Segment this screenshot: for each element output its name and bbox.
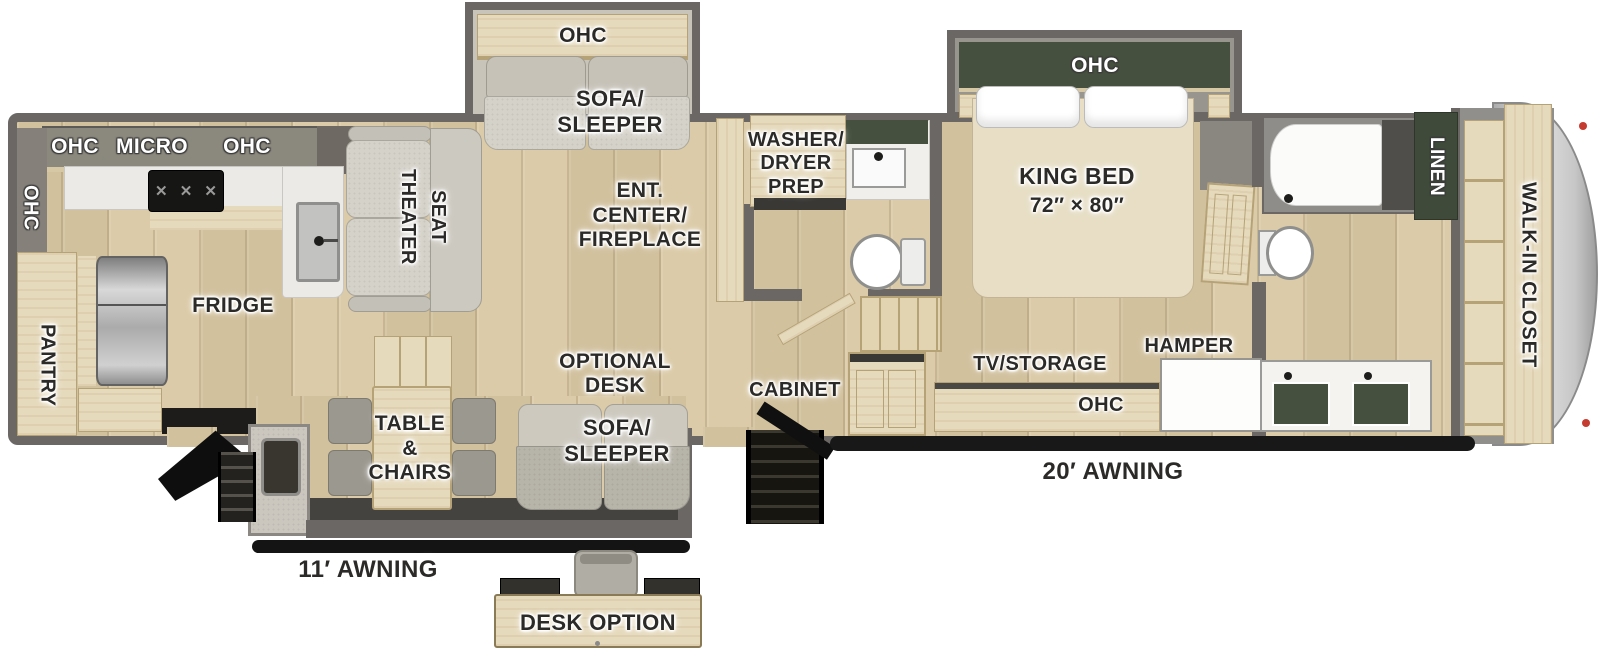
bath-shelf (846, 120, 928, 144)
fridge-label: FRIDGE (178, 292, 288, 320)
sofa-slide-ohc-label: OHC (533, 18, 633, 54)
bedroom-ohc-label: OHC (1045, 48, 1145, 84)
theater-seat-armrest (348, 296, 432, 312)
washer-dryer-label: WASHER/ DRYER PREP (735, 118, 857, 210)
rear-awning-label: 11′ AWNING (268, 556, 468, 584)
pantry-label: PANTRY (30, 300, 64, 430)
table-chairs-label: TABLE & CHAIRS (348, 406, 472, 492)
hall-cabinet-door (888, 370, 916, 428)
faucet-icon (1364, 372, 1372, 380)
fridge-door-split (98, 304, 166, 306)
faucet-icon (1284, 372, 1292, 380)
hamper-box (1160, 358, 1262, 432)
toilet-tank (900, 238, 926, 286)
faucet-icon (1284, 194, 1293, 203)
console-top-edge (935, 383, 1159, 389)
slide-bottom-wall (306, 520, 692, 538)
main-awning-label: 20′ AWNING (1013, 458, 1213, 486)
closet-shelves (1464, 120, 1504, 436)
pillow (976, 86, 1080, 128)
faucet-icon (314, 236, 324, 246)
walk-in-closet-label: WALK-IN CLOSET (1506, 120, 1550, 430)
vanity-sink (1272, 382, 1330, 426)
slide-window (261, 438, 301, 496)
king-bed-size-label: 72″ × 80″ (1002, 192, 1152, 220)
desk-option-label: DESK OPTION (508, 608, 688, 638)
pillow (1084, 86, 1188, 128)
faucet-icon (874, 152, 883, 161)
kitchen-ohc-left-label: OHC (44, 130, 106, 164)
cooktop: ✕✕✕ (148, 170, 224, 212)
floorplan-canvas: WALK-IN CLOSET OHC MICRO OHC OHC PANTRY … (0, 0, 1600, 650)
optional-desk-label: OPTIONAL DESK (540, 346, 690, 402)
kitchen-micro-label: MICRO (106, 130, 198, 164)
console-ohc-label: OHC (1056, 392, 1146, 420)
hamper-label: HAMPER (1130, 334, 1248, 360)
hall-cabinet-top (850, 354, 924, 362)
awning-roller (830, 436, 1475, 451)
bedroom-dresser (1200, 118, 1252, 190)
faucet-handle-icon (324, 239, 338, 242)
kitchen-ohc-right-label: OHC (214, 130, 280, 164)
burner-icon: ✕ (155, 182, 168, 200)
hutch (374, 336, 452, 388)
cabinet-beside-fridge (78, 256, 96, 386)
toilet (1266, 226, 1314, 280)
desk-chair-back (580, 554, 632, 564)
ent-center-label: ENT. CENTER/ FIREPLACE (558, 174, 722, 258)
bath-wall (744, 204, 754, 301)
entry-steps (218, 452, 256, 522)
burner-icon: ✕ (180, 182, 193, 200)
bath-wall (930, 113, 942, 303)
tv-storage-label: TV/STORAGE (955, 352, 1125, 378)
fridge (96, 256, 168, 386)
vanity-sink (1352, 382, 1410, 426)
burner-icon: ✕ (204, 182, 217, 200)
shower-seat (1382, 120, 1414, 210)
king-bed-label: KING BED (1002, 160, 1152, 192)
desk-handle-icon (595, 641, 600, 646)
rear-ohc-label: OHC (14, 160, 46, 255)
toilet (850, 234, 904, 290)
nightstand (1208, 94, 1230, 118)
marker-light-icon (1579, 122, 1587, 130)
marker-light-icon (1582, 419, 1590, 427)
hall-cabinet-door (856, 370, 884, 428)
cabinet-below-fridge (78, 388, 162, 432)
cabinet-label: CABINET (735, 378, 855, 404)
bedroom-steps (860, 296, 942, 352)
theater-seat-label: THEATER SEAT (390, 138, 456, 296)
sofa-sleeper-label: SOFA/ SLEEPER (537, 83, 683, 141)
linen-label: LINEN (1418, 118, 1454, 214)
dinette-sofa-sleeper-label: SOFA/ SLEEPER (542, 412, 692, 470)
